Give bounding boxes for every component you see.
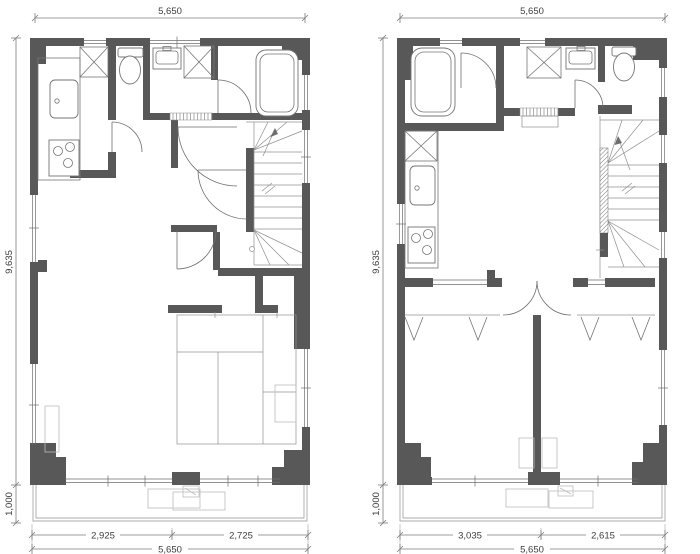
right-toilet-icon bbox=[612, 47, 636, 81]
entry-step bbox=[522, 116, 558, 127]
left-balcony-dimension-label: 1,000 bbox=[4, 492, 15, 516]
door-arc bbox=[178, 127, 237, 186]
left-bathtub-icon bbox=[256, 50, 298, 116]
left-tatami-room bbox=[45, 312, 296, 452]
floor-plan-drawing: 5,650 9,635 1,000 bbox=[0, 0, 700, 554]
stair-railing bbox=[600, 148, 608, 233]
left-bottom-total-label: 5,650 bbox=[158, 545, 182, 554]
right-kitchen bbox=[405, 131, 438, 268]
left-doors bbox=[112, 80, 251, 269]
left-bottom-segment2-label: 2,725 bbox=[229, 531, 253, 542]
desk bbox=[519, 438, 534, 468]
sliding-door bbox=[520, 108, 558, 116]
left-washbasin-icon bbox=[153, 47, 181, 70]
sliding-door bbox=[170, 113, 212, 120]
left-toilet-icon bbox=[118, 48, 143, 84]
left-side-dimension-line bbox=[11, 35, 21, 526]
left-kitchen bbox=[38, 47, 108, 180]
left-bottom-segment1-label: 2,925 bbox=[91, 531, 115, 542]
floor-plan-svg: 5,650 9,635 1,000 bbox=[0, 0, 700, 554]
right-bottom-segment1-label: 3,035 bbox=[458, 531, 482, 542]
closet-hanger-icon bbox=[469, 317, 487, 340]
left-washing-machine-icon bbox=[184, 46, 214, 78]
right-side-dimension-line bbox=[378, 35, 388, 526]
left-top-dimension-label: 5,650 bbox=[158, 6, 182, 17]
stove-icon bbox=[49, 140, 79, 176]
right-closets bbox=[405, 315, 655, 468]
right-floor-plan: 5,650 9,635 1,000 bbox=[371, 6, 668, 554]
left-staircase bbox=[246, 122, 302, 265]
left-balcony bbox=[33, 485, 307, 521]
right-bathtub-icon bbox=[411, 48, 455, 116]
refrigerator-space-icon bbox=[405, 131, 437, 161]
door-arc bbox=[575, 80, 603, 108]
desk bbox=[275, 385, 296, 422]
right-top-dimension-label: 5,650 bbox=[520, 6, 544, 17]
right-balcony-dimension-label: 1,000 bbox=[371, 492, 382, 516]
door-arc bbox=[461, 53, 496, 88]
right-balcony bbox=[400, 485, 665, 521]
double-door-arc bbox=[537, 281, 571, 315]
door-arc bbox=[218, 80, 251, 113]
right-washbasin-icon bbox=[566, 47, 595, 70]
closet-hanger-icon bbox=[581, 317, 599, 340]
door-arc bbox=[112, 122, 142, 152]
double-door-arc bbox=[503, 281, 537, 315]
right-staircase bbox=[596, 116, 659, 278]
kitchen-sink-icon bbox=[50, 80, 78, 118]
kitchen-sink-icon bbox=[410, 166, 435, 205]
closet-hanger-icon bbox=[632, 317, 650, 340]
right-doors bbox=[461, 53, 603, 315]
left-floor-plan: 5,650 9,635 1,000 bbox=[4, 6, 311, 554]
desk bbox=[542, 438, 557, 468]
right-height-dimension-label: 9,635 bbox=[371, 250, 382, 274]
right-bottom-total-label: 5,650 bbox=[520, 545, 544, 554]
closet-hanger-icon bbox=[405, 317, 423, 340]
washer-space-icon bbox=[80, 47, 108, 77]
door-arc bbox=[177, 230, 216, 269]
right-bottom-segment2-label: 2,615 bbox=[591, 531, 615, 542]
left-height-dimension-label: 9,635 bbox=[4, 250, 15, 274]
right-washing-machine-icon bbox=[527, 47, 561, 78]
stove-icon bbox=[408, 227, 435, 263]
